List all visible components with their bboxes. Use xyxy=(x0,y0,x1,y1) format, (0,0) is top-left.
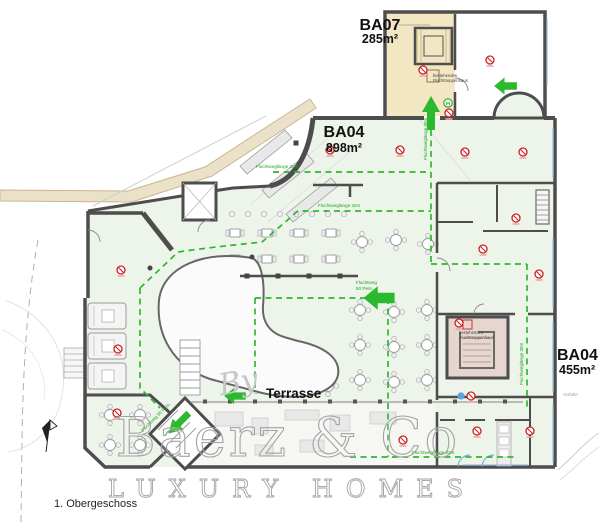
terrace-label: Terrasse xyxy=(266,386,322,401)
northeast-stair xyxy=(536,190,549,224)
wc-fixtures xyxy=(497,422,511,466)
water-point-icon xyxy=(457,392,464,399)
east-stair-note-2: Fluchttreppenhaus xyxy=(459,335,494,340)
northwest-room xyxy=(183,183,216,220)
floor-plan-page: H By Baerz & Co LUXURY HOMES BA07 285m² … xyxy=(0,0,600,522)
ba04-main-code: BA04 xyxy=(324,124,365,141)
floor-label: 1. Obergeschoss xyxy=(54,498,138,510)
ba04-east-code: BA04 xyxy=(557,347,598,364)
ba04-east-area: 455m² xyxy=(559,363,595,377)
property-boundary-line xyxy=(21,240,38,522)
ba07-stair-note-2: Fluchttreppenhaus xyxy=(433,78,468,83)
escape-length-35-a: Fluchtweglänge 35m xyxy=(423,117,428,160)
watermark-by: By xyxy=(215,362,262,404)
floor-plan-drawing: H By Baerz & Co LUXURY HOMES BA07 285m² … xyxy=(0,0,600,522)
escape-flow-line1: Fluchtweg xyxy=(356,280,377,285)
escape-length-22: Fluchtweglänge 22m xyxy=(412,450,455,455)
escape-length-32-a: Fluchtweglänge 32m xyxy=(256,164,299,169)
watermark-brand: Baerz & Co xyxy=(116,406,460,469)
watermark-tagline: LUXURY HOMES xyxy=(108,475,476,503)
north-arrow-icon xyxy=(42,420,57,452)
escape-length-32-b: Fluchtweglänge 32m xyxy=(318,203,361,208)
escape-length-35-b: Fluchtweglänge 35m xyxy=(519,342,524,385)
escape-flow-line2: 50 Pers. xyxy=(356,286,373,291)
driveway-label: Vorfahrt xyxy=(563,392,579,397)
hydrant-letter: H xyxy=(446,101,450,107)
ba04-main-area: 898m² xyxy=(326,141,362,155)
ba07-area: 285m² xyxy=(362,32,398,46)
